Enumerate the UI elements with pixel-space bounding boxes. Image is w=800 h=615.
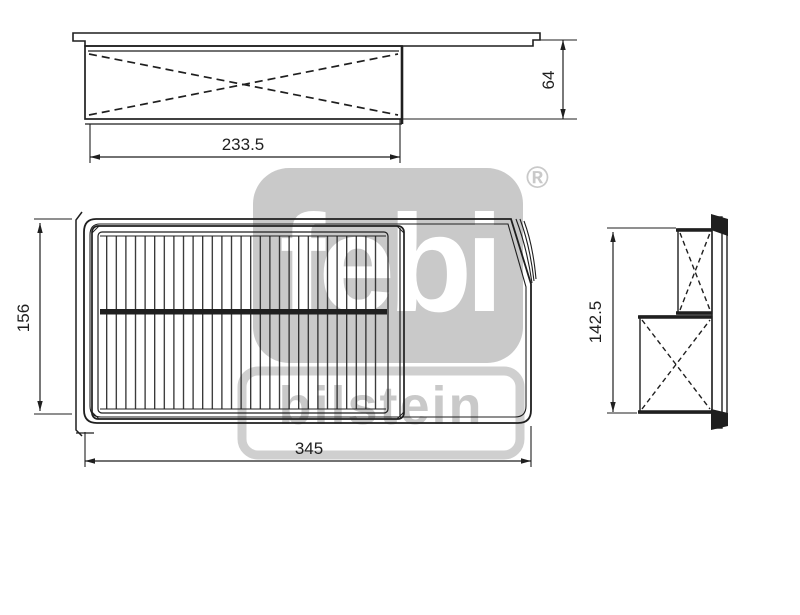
dim-label-side-height: 142.5 — [586, 301, 605, 344]
seal-tab-top — [711, 214, 728, 236]
top-view: 233.5 64 — [73, 33, 577, 163]
top-view-plate — [73, 33, 540, 46]
technical-drawing: febi ® bilstein 233.5 — [0, 0, 800, 615]
dim-label-top-width: 233.5 — [222, 135, 265, 154]
dimension-top-height: 64 — [403, 40, 577, 119]
dimension-top-width: 233.5 — [90, 119, 400, 163]
seal-tab-bottom — [711, 409, 728, 430]
dimension-side-height: 142.5 — [586, 228, 676, 413]
front-view-gasket-edge — [76, 212, 82, 436]
center-support-band — [100, 309, 387, 315]
top-view-element-box — [85, 46, 402, 119]
dim-label-front-height: 156 — [14, 304, 33, 332]
registered-trademark-symbol: ® — [526, 160, 549, 195]
drawing-svg: febi ® bilstein 233.5 — [0, 0, 800, 615]
side-view: 142.5 — [586, 214, 728, 430]
dim-label-top-height: 64 — [539, 71, 558, 90]
dimension-front-height: 156 — [14, 219, 72, 414]
dim-label-front-width: 345 — [295, 439, 323, 458]
filter-pleats — [106, 236, 384, 409]
side-view-seal-plate — [712, 217, 722, 428]
